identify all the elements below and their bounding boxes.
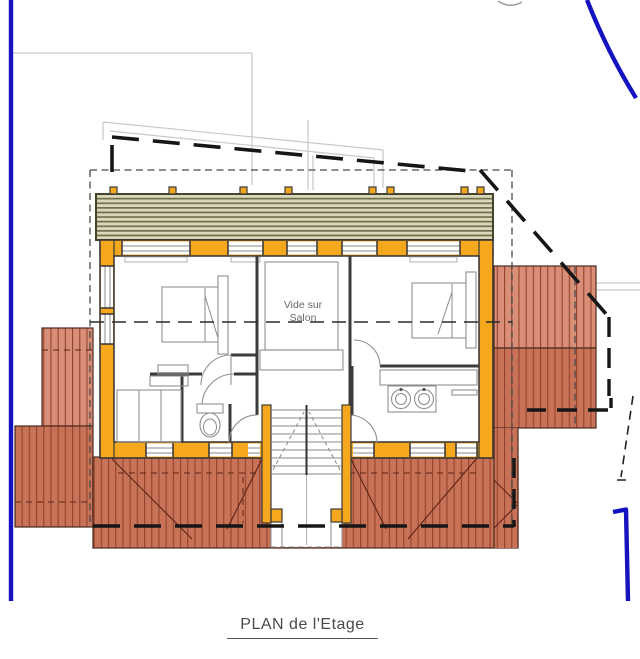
roof-right-lower [494,348,596,428]
roof-left-lower [15,426,93,527]
window [101,266,114,344]
floor-plan-drawing: Vide sur Salon PLAN de l'Etage [0,0,640,659]
roof-left-upper [42,328,93,426]
plan-canvas [0,0,640,659]
road-corner-bottom-right [613,510,628,602]
bed-right [412,272,476,348]
void-label-line2: Salon [259,312,347,325]
void-label: Vide sur Salon [259,299,347,325]
roof-right-upper [494,266,596,348]
deck-posts [110,187,484,194]
deck-terrace [96,194,493,240]
plan-caption: PLAN de l'Etage [227,616,378,639]
void-label-line1: Vide sur [259,299,347,312]
bed-left [162,276,228,354]
road-curve-top-right [587,0,636,98]
